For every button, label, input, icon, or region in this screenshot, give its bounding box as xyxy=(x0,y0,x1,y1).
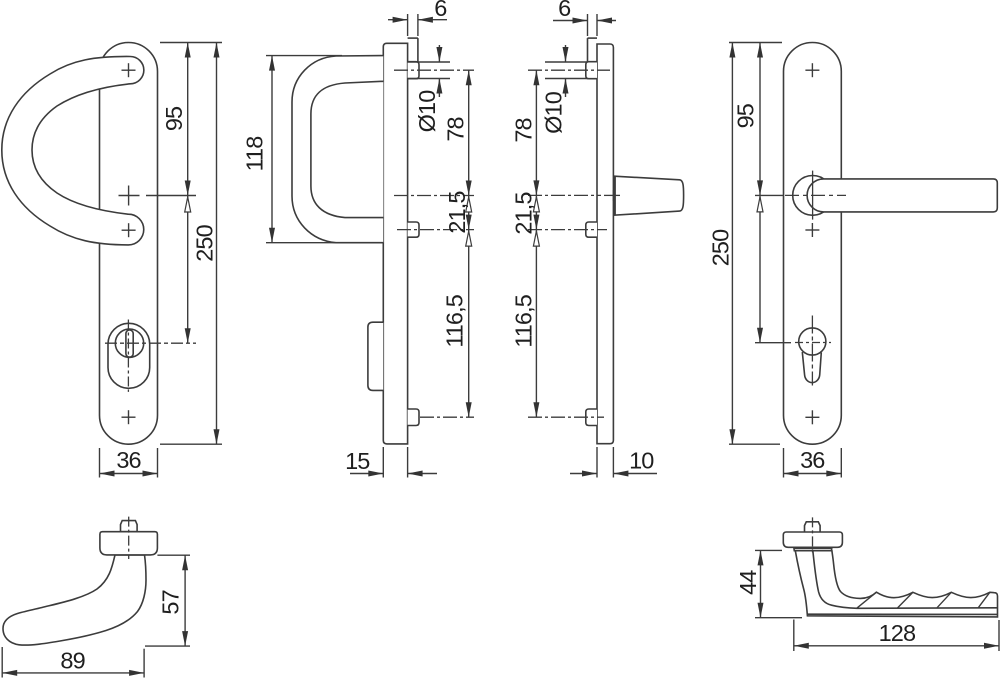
svg-text:57: 57 xyxy=(158,590,184,614)
svg-text:15: 15 xyxy=(345,448,370,474)
svg-text:78: 78 xyxy=(442,117,468,142)
svg-text:6: 6 xyxy=(558,0,571,21)
svg-text:21,5: 21,5 xyxy=(444,191,470,234)
svg-text:10: 10 xyxy=(629,448,654,474)
svg-text:116,5: 116,5 xyxy=(510,294,536,347)
svg-text:89: 89 xyxy=(60,648,84,674)
svg-text:21,5: 21,5 xyxy=(510,192,536,235)
svg-text:250: 250 xyxy=(192,224,218,261)
svg-text:Ø10: Ø10 xyxy=(414,90,440,133)
svg-text:44: 44 xyxy=(735,570,761,595)
svg-text:78: 78 xyxy=(510,118,536,143)
svg-text:95: 95 xyxy=(161,106,187,131)
svg-text:118: 118 xyxy=(242,136,268,172)
svg-text:6: 6 xyxy=(434,0,447,21)
svg-text:116,5: 116,5 xyxy=(442,294,468,347)
svg-text:36: 36 xyxy=(116,447,141,473)
svg-text:95: 95 xyxy=(733,103,759,128)
svg-text:250: 250 xyxy=(707,229,733,266)
svg-text:36: 36 xyxy=(800,447,825,473)
svg-text:Ø10: Ø10 xyxy=(541,91,567,134)
svg-text:128: 128 xyxy=(879,620,916,646)
